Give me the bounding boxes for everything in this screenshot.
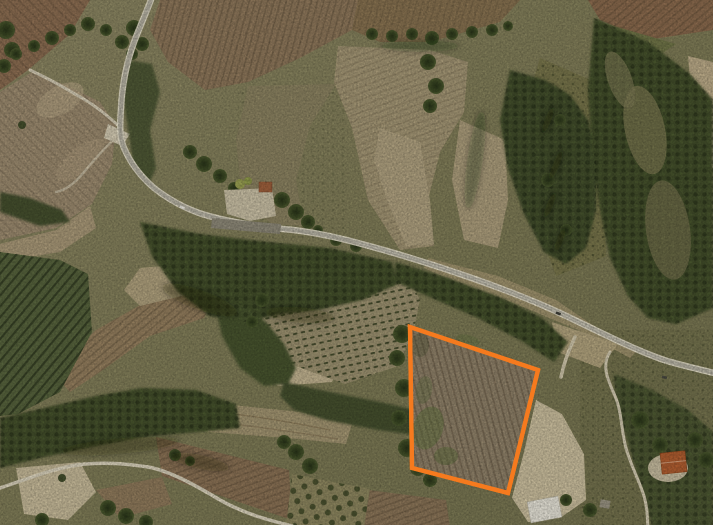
photo-tint — [0, 0, 713, 525]
aerial-map — [0, 0, 713, 525]
aerial-photo-canvas — [0, 0, 713, 525]
